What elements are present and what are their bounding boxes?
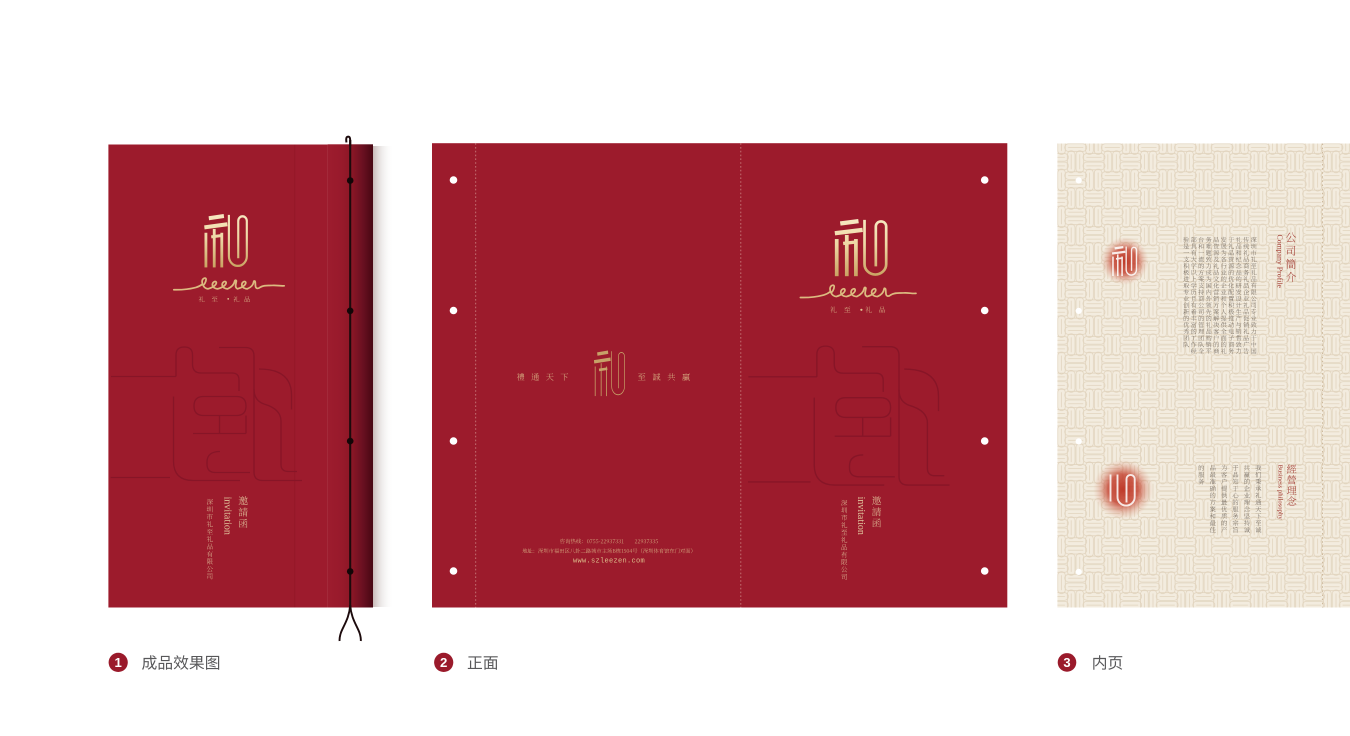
- svg-text:3: 3: [1063, 655, 1070, 670]
- svg-text:invitation: invitation: [221, 497, 232, 535]
- svg-text:2: 2: [440, 655, 447, 670]
- svg-text:www.szleezen.com: www.szleezen.com: [573, 557, 645, 565]
- svg-text:Business philosophy: Business philosophy: [1277, 465, 1284, 521]
- svg-text:1: 1: [115, 655, 122, 670]
- svg-text:invitation: invitation: [855, 497, 866, 535]
- svg-text:Company Profile: Company Profile: [1276, 235, 1285, 289]
